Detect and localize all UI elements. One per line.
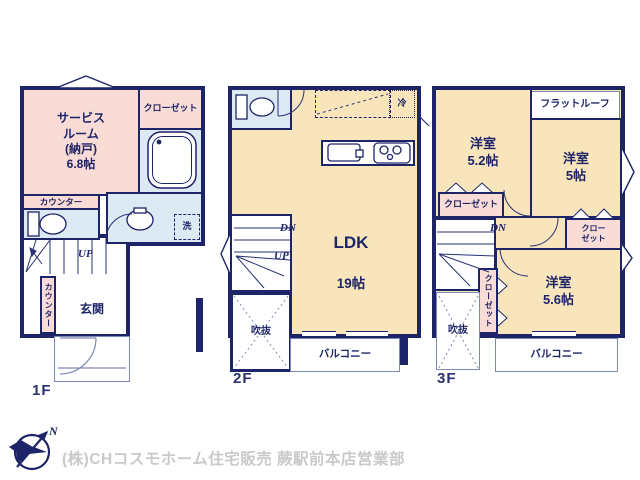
laundry-space: 洗	[174, 214, 200, 240]
counter-side-label: カウンター	[43, 283, 53, 328]
compass: N	[6, 421, 64, 477]
company-name: (株)CHコスモホーム住宅販売 蕨駅前本店営業部	[62, 447, 405, 469]
floorplan-1f: サービス ルーム (納戸) 6.8帖 クローゼット カウンター 洗 UP カウン…	[20, 86, 205, 400]
floorplan-canvas: サービス ルーム (納戸) 6.8帖 クローゼット カウンター 洗 UP カウン…	[0, 0, 640, 480]
room-56-label: 洋室 5.6帖	[543, 275, 574, 308]
3f-room-56: 洋室 5.6帖	[495, 248, 622, 336]
1f-wall-stub	[196, 298, 203, 352]
3f-floor-label: 3F	[437, 370, 457, 387]
1f-closet: クローゼット	[138, 88, 203, 130]
1f-stairs-up-label: UP	[78, 248, 93, 260]
fridge-label: 冷	[397, 98, 406, 110]
floorplan-2f: 冷 LDK 19帖 DN UP 吹抜 バルコニー 2F	[228, 86, 421, 386]
2f-kitchen-counter	[321, 140, 415, 166]
flat-roof-label: フラットルーフ	[540, 99, 609, 112]
2f-stairs-up-label: UP	[274, 250, 289, 262]
1f-lower-shell	[20, 234, 130, 338]
room-52-label: 洋室 5.2帖	[467, 136, 498, 169]
3f-balcony-label: バルコニー	[530, 348, 582, 361]
2f-balcony: バルコニー	[290, 338, 400, 372]
closet-c-label: クローゼット	[483, 274, 493, 328]
floorplan-3f: フラットルーフ 洋室 5.2帖 洋室 5帖 クローゼット DN クロー ゼット …	[432, 86, 625, 386]
laundry-label: 洗	[182, 221, 191, 233]
service-room-label: サービス ルーム (納戸) 6.8帖	[57, 111, 105, 172]
2f-balcony-label: バルコニー	[319, 348, 371, 361]
3f-void: 吹抜	[436, 292, 480, 370]
3f-room-5: 洋室 5帖	[530, 118, 622, 218]
2f-wall-stub	[400, 335, 408, 365]
1f-porch	[54, 336, 130, 382]
room-5-label: 洋室 5帖	[563, 151, 589, 184]
3f-void-label: 吹抜	[448, 325, 468, 338]
ldk-label: LDK 19帖	[311, 212, 391, 312]
3f-flat-roof: フラットルーフ	[530, 91, 620, 120]
2f-fridge-space: 冷	[389, 90, 415, 118]
ldk-size: 19帖	[311, 275, 391, 292]
1f-service-room: サービス ルーム (納戸) 6.8帖	[22, 88, 140, 196]
closet-b-label: クロー ゼット	[582, 224, 606, 244]
3f-closet-c: クローゼット	[478, 268, 498, 334]
3f-balcony: バルコニー	[495, 338, 618, 372]
3f-closet-a: クローゼット	[438, 192, 504, 218]
counter-top-label: カウンター	[40, 197, 83, 208]
1f-floor-label: 1F	[32, 382, 52, 399]
2f-floor-label: 2F	[233, 370, 253, 387]
3f-closet-b: クロー ゼット	[565, 218, 622, 250]
1f-toilet-room	[22, 208, 100, 240]
1f-counter-side: カウンター	[40, 276, 56, 334]
2f-void-label: 吹抜	[251, 326, 271, 339]
closet-label: クローゼット	[143, 103, 197, 115]
1f-bathroom	[138, 128, 203, 194]
entrance-label: 玄関	[60, 302, 124, 317]
ldk-name: LDK	[311, 232, 391, 254]
2f-void: 吹抜	[230, 292, 292, 372]
3f-stairs-dn-label: DN	[490, 222, 506, 234]
closet-a-label: クローゼット	[444, 199, 498, 211]
compass-north-label: N	[48, 424, 59, 438]
2f-stairs-dn-label: DN	[280, 222, 296, 234]
2f-toilet-room	[230, 88, 292, 130]
compass-icon: N	[6, 421, 64, 477]
2f-storage-area	[315, 90, 391, 118]
